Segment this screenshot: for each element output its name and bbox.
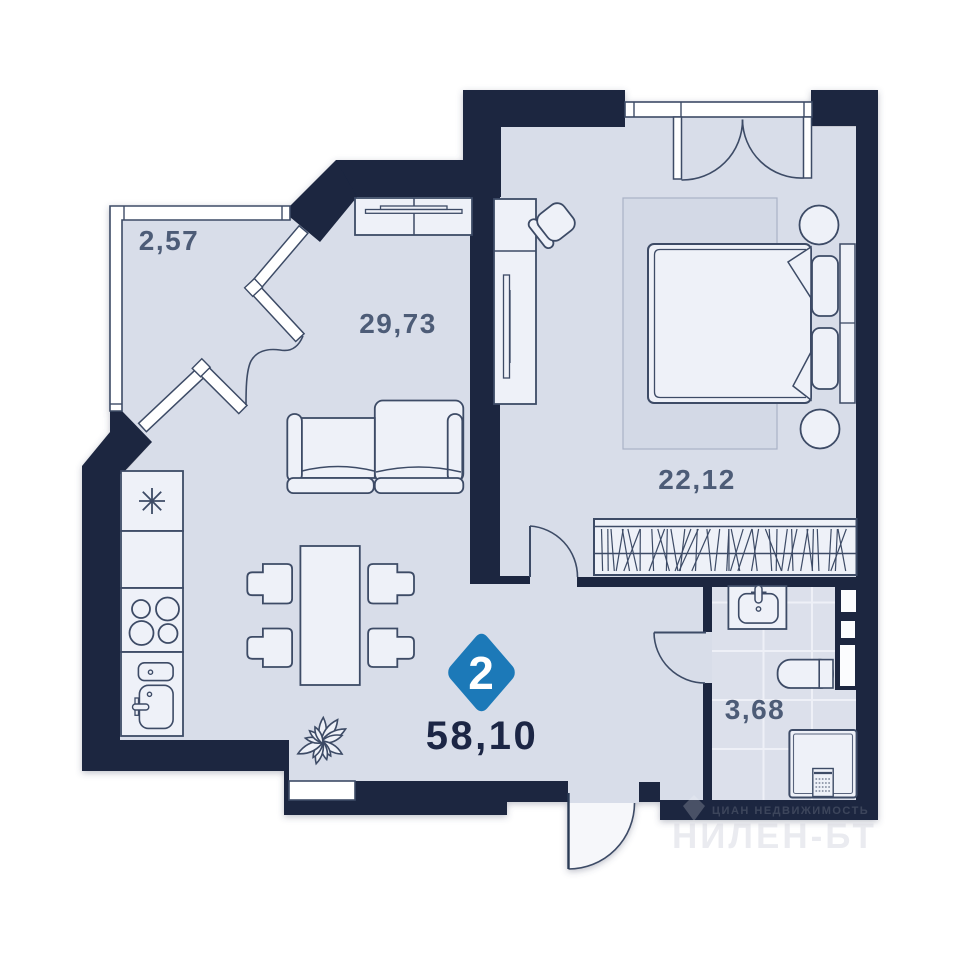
svg-text:НИЛЕН-БТ: НИЛЕН-БТ — [672, 817, 877, 856]
svg-text:2: 2 — [468, 647, 494, 699]
svg-text:22,12: 22,12 — [658, 464, 736, 495]
svg-text:29,73: 29,73 — [359, 308, 437, 339]
svg-text:58,10: 58,10 — [426, 714, 539, 758]
svg-text:2,57: 2,57 — [139, 225, 200, 256]
svg-text:ЦИАН НЕДВИЖИМОСТЬ: ЦИАН НЕДВИЖИМОСТЬ — [712, 805, 869, 817]
svg-text:3,68: 3,68 — [725, 694, 786, 725]
